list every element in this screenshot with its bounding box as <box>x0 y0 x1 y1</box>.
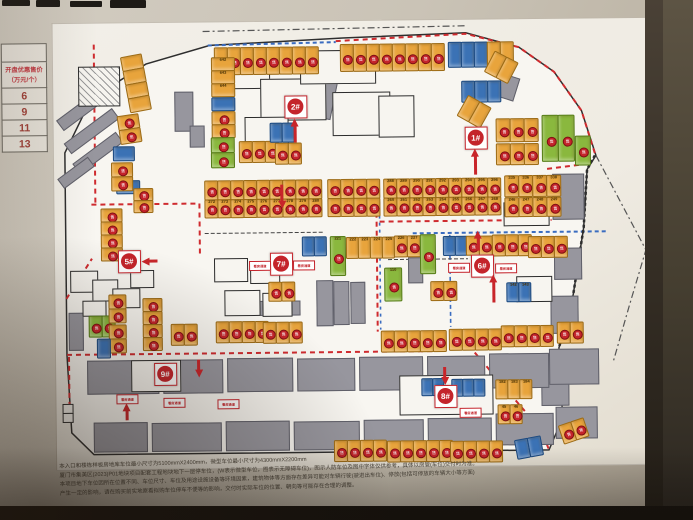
sold-badge: 售 <box>311 205 321 215</box>
price-value: 13 <box>2 136 48 152</box>
sold-badge: 售 <box>490 184 500 194</box>
parking-cluster: 售售 <box>171 324 197 344</box>
parking-cluster: 售售售售 <box>327 198 379 216</box>
sold-badge: 售 <box>245 329 255 339</box>
parking-cluster: 售售 <box>541 115 573 160</box>
sold-badge: 售 <box>399 185 409 195</box>
sold-badge: 售 <box>436 338 446 348</box>
arrow-shaft <box>197 360 200 371</box>
sold-badge: 售 <box>434 54 444 64</box>
parking-spot: 售 <box>431 43 445 71</box>
sold-badge: 售 <box>490 203 500 213</box>
parking-spot: 644 <box>211 83 235 97</box>
sold-badge: 售 <box>266 330 276 340</box>
parking-spot: 售 <box>133 200 153 213</box>
sold-badge: 售 <box>279 330 289 340</box>
price-table: 开盘优惠售价 （万元/个） 6 9 11 13 <box>1 43 48 152</box>
parking-spot: 售 <box>288 142 302 164</box>
sold-badge: 售 <box>495 242 505 252</box>
spot-number: 294 <box>465 178 471 183</box>
spot-number: 222 <box>350 237 356 242</box>
building-marker: 9# <box>154 362 177 385</box>
spot-number: 279 <box>299 198 305 203</box>
sold-badge: 售 <box>508 183 518 193</box>
sold-badge: 售 <box>508 204 518 214</box>
sold-badge: 售 <box>464 185 474 195</box>
map-layer: 售售售售售售售售售售售售售售售售642643644售售售售售售售售售售售售售售售… <box>0 0 693 520</box>
parking-spot: 售 <box>540 325 554 347</box>
arrow-shaft <box>473 156 476 175</box>
gray-structure-block <box>297 358 355 392</box>
spot-number: 642 <box>217 57 228 62</box>
parking-spot: 售 <box>554 236 568 258</box>
sold-badge: 售 <box>560 330 570 340</box>
price-table-header-line1: 开盘优惠售价 <box>5 66 43 74</box>
sold-badge: 售 <box>438 185 448 195</box>
parking-cluster: 642643644 <box>211 57 233 96</box>
spot-number: 278 <box>286 199 292 204</box>
viewing-route-sign: 看房通道 <box>448 263 470 273</box>
gray-structure-block <box>316 280 333 326</box>
sold-badge: 售 <box>92 324 102 334</box>
sold-badge: 售 <box>369 55 379 65</box>
sold-badge: 售 <box>298 186 308 196</box>
parking-spot: 338售 <box>546 175 561 197</box>
sold-badge: 售 <box>424 252 434 262</box>
parking-spot: 249售 <box>546 197 561 217</box>
gray-structure-block <box>549 348 599 385</box>
spot-number: 246 <box>509 197 516 202</box>
sold-badge: 售 <box>504 333 514 343</box>
sold-badge: 售 <box>410 243 420 253</box>
price-table-header: 开盘优惠售价 （万元/个） <box>1 62 47 88</box>
viewing-route-sign-text: 看房通道 <box>168 401 181 406</box>
sold-badge: 售 <box>233 187 243 197</box>
sold-badge: 售 <box>410 338 420 348</box>
parking-cluster: 售 <box>420 234 435 272</box>
parking-cluster: 售售 <box>111 162 131 190</box>
sold-badge: 售 <box>579 148 589 158</box>
photo-of-parking-plan-board: 售售售售售售售售售售售售售售售售642643644售售售售售售售售售售售售售售售… <box>0 0 693 520</box>
parking-cluster: 288售289售290售291售292售293售294售295售296售 <box>383 177 500 196</box>
spot-number: 45 <box>501 404 507 409</box>
parking-spot: 售 <box>184 324 198 346</box>
sold-badge: 售 <box>246 205 256 215</box>
sold-badge: 售 <box>219 142 229 152</box>
parking-cluster: 182183184 <box>495 379 531 397</box>
sold-badge: 售 <box>479 449 489 459</box>
sold-badge: 售 <box>369 186 379 196</box>
arrow-shaft <box>476 238 479 251</box>
spot-number: 110 <box>389 267 397 272</box>
spot-number: 291 <box>426 178 432 183</box>
arrow-shaft <box>125 410 128 420</box>
price-value: 9 <box>1 104 47 120</box>
sold-badge: 售 <box>174 332 184 342</box>
parking-spot: 售 <box>108 308 126 323</box>
price-table-header-line2: （万元/个） <box>8 76 41 84</box>
parking-spot: 售 <box>108 294 126 309</box>
parking-cluster: 110售 <box>384 267 401 299</box>
sold-badge: 售 <box>232 329 242 339</box>
route-arrow <box>290 118 299 142</box>
wall <box>663 0 693 520</box>
sold-badge: 售 <box>527 127 537 137</box>
parking-cluster: 售售售 <box>528 236 567 256</box>
route-arrow <box>440 367 449 385</box>
sold-badge: 售 <box>397 243 407 253</box>
parking-spot: 143 <box>518 282 531 302</box>
gray-structure-block <box>226 421 290 452</box>
viewing-route-sign-text: 看房通道 <box>222 402 235 407</box>
sold-badge: 售 <box>543 333 553 343</box>
sold-badge: 售 <box>207 187 217 197</box>
sold-badge: 售 <box>219 157 229 167</box>
spot-number: 288 <box>387 179 393 184</box>
spot-number: 273 <box>221 199 227 204</box>
spot-number: 260 <box>387 198 393 203</box>
spot-number: 280 <box>312 198 318 203</box>
viewing-route-sign-text: 看房通道 <box>453 266 466 271</box>
parking-spot: 售 <box>489 440 503 462</box>
sold-badge: 售 <box>246 187 256 197</box>
arrow-head <box>195 370 203 378</box>
route-arrow <box>489 274 498 302</box>
parking-spot: 246售 <box>504 197 519 217</box>
sold-badge: 售 <box>482 242 492 252</box>
route-arrow <box>141 256 157 265</box>
sold-badge: 售 <box>397 338 407 348</box>
sold-badge: 售 <box>269 58 279 68</box>
sold-badge: 售 <box>465 337 475 347</box>
spot-number: 183 <box>511 379 517 384</box>
parking-spot: 336售 <box>518 175 533 197</box>
spot-number: 264 <box>439 197 445 202</box>
sold-badge: 售 <box>550 183 560 193</box>
building-marker-label: 9# <box>157 366 173 382</box>
spot-number: 290 <box>413 178 419 183</box>
parking-spot: 售 <box>557 115 574 162</box>
viewing-route-sign: 看房通道 <box>460 408 482 418</box>
spot-number: 293 <box>452 178 458 183</box>
sold-badge: 售 <box>382 55 392 65</box>
board-frame <box>645 0 665 520</box>
parking-spot: 售 <box>211 137 235 153</box>
route-arrow <box>473 231 482 251</box>
parking-spot: 售 <box>541 115 558 162</box>
parking-cluster: 售售售售售售售售售 <box>204 179 321 198</box>
sold-badge: 售 <box>243 58 253 68</box>
sold-badge: 售 <box>425 185 435 195</box>
spot-number: 266 <box>465 197 471 202</box>
parking-spot <box>314 236 327 256</box>
viewing-route-sign-text: 看房通道 <box>298 263 311 268</box>
parking-spot: 售 <box>289 321 303 343</box>
sold-badge: 售 <box>330 204 340 214</box>
sold-badge: 售 <box>522 204 532 214</box>
spot-number: 289 <box>400 178 406 183</box>
parking-cluster <box>97 338 110 356</box>
sold-badge: 售 <box>557 244 567 254</box>
spot-number: 292 <box>439 178 445 183</box>
sold-badge: 售 <box>492 448 502 458</box>
route-arrow <box>470 149 479 175</box>
parking-spot: 售 <box>111 176 133 191</box>
arrow-shaft <box>280 185 283 202</box>
building-marker-label: 6# <box>474 257 490 273</box>
route-arrow <box>277 185 286 209</box>
building-outline <box>130 270 154 288</box>
parking-spot: 221售 <box>330 236 346 276</box>
price-value: 6 <box>1 88 47 104</box>
parking-cluster: 售售售 <box>263 321 302 341</box>
parking-spot: 售 <box>496 143 511 165</box>
sold-badge: 售 <box>298 205 308 215</box>
spot-number: 263 <box>426 197 432 202</box>
parking-spot: 售 <box>510 143 525 165</box>
parking-spot: 售 <box>524 143 539 165</box>
sold-badge: 售 <box>330 186 340 196</box>
parking-cluster: 售售售售售售售售 <box>340 43 444 70</box>
building-marker-label: 7# <box>273 256 289 272</box>
sold-badge: 售 <box>278 151 288 161</box>
parking-cluster: 售售售 <box>239 141 278 161</box>
parking-cluster <box>120 54 150 113</box>
gray-structure-block <box>94 422 148 453</box>
sold-badge: 售 <box>284 288 294 298</box>
spot-number: 335 <box>508 175 515 180</box>
gray-structure-block <box>227 358 293 393</box>
sold-badge: 售 <box>508 242 518 252</box>
spot-number: 276 <box>260 199 266 204</box>
building-marker-label: 5# <box>121 253 137 269</box>
spot-number: 296 <box>491 177 497 182</box>
cropped-title-fragment <box>2 0 30 6</box>
gray-structure-block <box>152 422 222 452</box>
parking-cluster: 260售261售262售263售264售265售266售267售268售 <box>383 196 500 214</box>
sold-badge: 售 <box>395 55 405 65</box>
sold-badge: 售 <box>478 337 488 347</box>
sold-badge: 售 <box>512 411 522 421</box>
spot-number: 224 <box>374 237 380 242</box>
parking-spot: 售 <box>211 152 235 168</box>
parking-spot: 售 <box>111 162 133 177</box>
sold-badge: 售 <box>451 185 461 195</box>
parking-cluster: 售售 <box>275 142 301 162</box>
viewing-route-sign: 看房通道 <box>293 260 315 270</box>
sold-badge: 售 <box>412 204 422 214</box>
spot-number: 184 <box>523 379 529 384</box>
sold-badge: 售 <box>386 185 396 195</box>
parking-cluster: 售售售 <box>496 143 538 163</box>
parking-spot: 售 <box>575 135 591 165</box>
parking-spot: 46售 <box>510 404 523 424</box>
parking-cluster: 售售 <box>430 281 456 299</box>
gray-structure-block <box>69 313 84 351</box>
viewing-route-sign-text: 看房通道 <box>254 264 267 269</box>
viewing-route-sign: 看房通道 <box>249 261 271 271</box>
sold-badge: 售 <box>408 55 418 65</box>
parking-spot <box>487 80 501 102</box>
parking-spot <box>113 146 135 161</box>
sold-badge: 售 <box>292 329 302 339</box>
sold-badge: 售 <box>126 132 137 143</box>
parking-spot <box>128 95 152 114</box>
spot-number: 261 <box>400 197 406 202</box>
parking-spot: 售 <box>308 179 322 199</box>
sold-badge: 售 <box>291 150 301 160</box>
sold-badge: 售 <box>220 187 230 197</box>
spot-number: 644 <box>218 83 229 88</box>
sold-badge: 售 <box>219 329 229 339</box>
sold-badge: 售 <box>233 205 243 215</box>
parking-spot: 售 <box>109 324 127 339</box>
sold-badge: 售 <box>285 205 295 215</box>
viewing-route-sign-text: 看房通道 <box>121 397 134 402</box>
sold-badge: 售 <box>356 204 366 214</box>
sold-badge: 售 <box>451 203 461 213</box>
parking-spot <box>473 379 485 397</box>
sold-badge: 售 <box>256 58 266 68</box>
sold-badge: 售 <box>466 449 476 459</box>
parking-spot: 售 <box>524 118 539 142</box>
parking-cluster <box>113 146 133 160</box>
sold-badge: 售 <box>255 149 265 159</box>
building-outline <box>224 290 260 316</box>
parking-spot: 售 <box>570 322 584 344</box>
parking-cluster: 246售247售248售249售 <box>504 197 560 216</box>
parking-cluster: 售售 <box>557 322 583 342</box>
parking-spot: 售 <box>281 282 295 302</box>
building-outline <box>214 258 248 282</box>
building-outline <box>378 95 414 137</box>
parking-cluster: 221售 <box>330 236 345 274</box>
sold-badge: 售 <box>308 58 318 68</box>
sold-badge: 售 <box>282 58 292 68</box>
sold-badge: 售 <box>118 180 128 190</box>
spot-number: 248 <box>537 197 544 202</box>
sold-badge: 售 <box>259 205 269 215</box>
sold-badge: 售 <box>139 203 149 213</box>
sold-badge: 售 <box>438 203 448 213</box>
parking-spot: 售 <box>496 118 511 142</box>
sold-badge: 售 <box>423 338 433 348</box>
sold-badge: 售 <box>522 183 532 193</box>
sold-badge: 售 <box>499 127 509 137</box>
parking-cluster <box>514 435 543 457</box>
sold-badge: 售 <box>384 339 394 349</box>
viewing-route-sign: 看房通道 <box>495 263 517 273</box>
parking-spot: 售 <box>119 127 143 145</box>
sold-badge: 售 <box>536 204 546 214</box>
sold-badge: 售 <box>464 203 474 213</box>
spot-number: 275 <box>247 199 253 204</box>
parking-cluster: 222223224225 <box>346 237 394 258</box>
parking-spot: 247售 <box>518 197 533 217</box>
sold-badge: 售 <box>389 282 399 292</box>
parking-cluster: 售售 <box>108 294 124 322</box>
viewing-route-sign: 看房通道 <box>163 398 185 408</box>
parking-cluster: 45售46售 <box>498 404 522 422</box>
parking-spot <box>97 338 111 358</box>
spot-number: 338 <box>550 175 557 180</box>
building-marker: 5# <box>117 250 140 273</box>
sold-badge: 售 <box>562 136 572 146</box>
sold-badge: 售 <box>575 424 588 437</box>
parking-cluster: 142143 <box>506 282 530 300</box>
building-marker: 2# <box>284 95 307 118</box>
parking-spot: 售 <box>305 46 319 74</box>
spot-number: 143 <box>522 282 528 287</box>
cropped-title-fragment <box>70 1 102 7</box>
parking-cluster <box>302 236 326 254</box>
spot-number: 142 <box>510 282 516 287</box>
parking-spot <box>211 97 235 111</box>
sold-badge: 售 <box>531 244 541 254</box>
spot-number: 272 <box>208 199 214 204</box>
hatched-building <box>78 66 120 106</box>
parking-spot: 268售 <box>487 196 501 215</box>
spot-number: 247 <box>523 197 530 202</box>
parking-cluster: 售售 <box>211 111 233 137</box>
building-outline <box>82 301 106 317</box>
price-value: 11 <box>2 120 48 136</box>
sold-badge: 售 <box>491 336 501 346</box>
building-marker: 8# <box>434 384 457 407</box>
sold-badge: 售 <box>220 206 230 216</box>
sold-badge: 售 <box>513 127 523 137</box>
spot-number: 182 <box>499 379 505 384</box>
spot-number: 223 <box>362 237 368 242</box>
sold-badge: 售 <box>573 330 583 340</box>
arrow-head <box>278 201 286 209</box>
parking-spot: 296售 <box>487 177 501 197</box>
parking-cluster: 售售售售 <box>142 298 161 350</box>
sold-badge: 售 <box>412 185 422 195</box>
sold-badge: 售 <box>343 186 353 196</box>
parking-cluster: 售售售售 <box>501 325 553 346</box>
sold-badge: 售 <box>513 151 523 161</box>
parking-cluster: 272售273售274售275售276售277售278售279售280售 <box>204 198 321 216</box>
sold-badge: 售 <box>356 186 366 196</box>
parking-cluster: 售售售 <box>492 234 531 254</box>
sold-badge: 售 <box>259 187 269 197</box>
parking-cluster: 售售售售 <box>327 179 379 198</box>
parking-spot: 售 <box>443 281 457 301</box>
spot-number: 249 <box>551 197 558 202</box>
parking-spot: 248售 <box>532 197 547 217</box>
sold-badge: 售 <box>536 183 546 193</box>
spot-number: 337 <box>536 175 543 180</box>
building-marker-label: 8# <box>437 388 453 404</box>
arrow-shaft <box>492 281 495 302</box>
viewing-route-sign-text: 看房通道 <box>464 410 477 415</box>
price-table-top-stub <box>1 43 47 62</box>
parking-cluster: 售售 <box>116 113 140 144</box>
parking-spot: 售 <box>109 338 127 353</box>
parking-spot: 售 <box>510 118 525 142</box>
parking-cluster: 售售售售售 <box>381 330 446 351</box>
spot-number: 268 <box>491 196 497 201</box>
sold-badge: 售 <box>544 244 554 254</box>
sold-badge: 售 <box>550 204 560 214</box>
sold-badge: 售 <box>499 151 509 161</box>
spot-number: 643 <box>218 70 229 75</box>
parking-cluster: 售 <box>575 135 590 163</box>
sold-badge: 售 <box>517 333 527 343</box>
spot-number: 221 <box>334 236 341 241</box>
parking-cluster: 售售售售 <box>216 321 268 342</box>
